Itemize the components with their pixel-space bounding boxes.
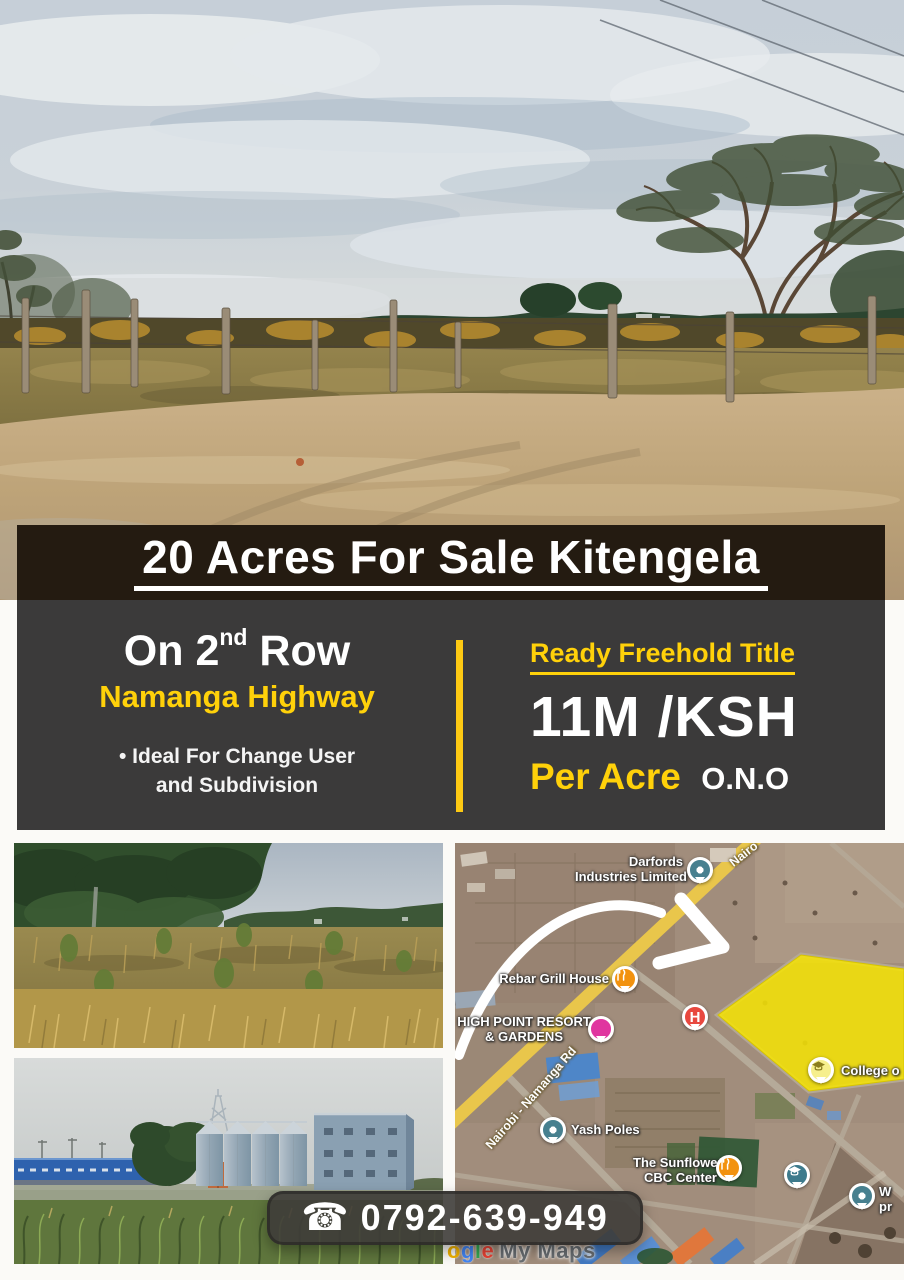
- phone-number: 0792-639-949: [361, 1197, 609, 1239]
- location-block: On 2nd Row Namanga Highway • Ideal For C…: [17, 600, 457, 801]
- hero-photo-art: [0, 0, 904, 600]
- label-highpoint: HIGH POINT RESORT & GARDENS: [457, 1015, 591, 1045]
- title-banner: 20 Acres For Sale Kitengela: [17, 525, 885, 600]
- flyer: 20 Acres For Sale Kitengela On 2nd Row N…: [0, 0, 904, 1280]
- per-acre-row: Per Acre O.N.O: [530, 758, 890, 795]
- grey-building: [314, 1114, 414, 1192]
- hero-photo: [0, 0, 904, 600]
- freehold-title: Ready Freehold Title: [530, 640, 795, 675]
- telephone-icon: ☎: [301, 1199, 348, 1237]
- poi-pin-highpoint-icon: [588, 1016, 614, 1042]
- price-block: Ready Freehold Title 11M /KSH Per Acre O…: [530, 600, 890, 795]
- label-darfords: Darfords Industries Limited: [575, 855, 683, 885]
- row-line: On 2nd Row: [17, 626, 457, 673]
- ono-label: O.N.O: [701, 761, 789, 796]
- label-sunflower: The Sunflower CBC Center: [633, 1156, 717, 1186]
- ordinal-superscript: nd: [219, 624, 247, 650]
- poi-pin-hospital-icon: H: [682, 1004, 708, 1030]
- details-panel: On 2nd Row Namanga Highway • Ideal For C…: [17, 600, 885, 830]
- field-photo: [14, 843, 443, 1048]
- label-college: College o: [841, 1064, 900, 1079]
- feature-bullet: • Ideal For Change User and Subdivision: [17, 742, 457, 801]
- page-title: 20 Acres For Sale Kitengela: [134, 534, 768, 591]
- poi-pin-college-icon: [808, 1057, 834, 1083]
- per-acre-label: Per Acre: [530, 756, 681, 797]
- poi-pin-rebar-restaurant-icon: [612, 966, 638, 992]
- poi-pin-west-icon: [849, 1183, 875, 1209]
- poi-pin-yash-icon: [540, 1117, 566, 1143]
- poi-pin-darfords-icon: [687, 857, 713, 883]
- vertical-divider: [456, 640, 463, 812]
- label-yash: Yash Poles: [571, 1123, 640, 1138]
- poi-pin-school-icon: [784, 1162, 810, 1188]
- label-west: W pr: [879, 1185, 892, 1215]
- price-value: 11M /KSH: [530, 689, 890, 746]
- phone-pill: ☎ 0792-639-949: [267, 1191, 643, 1245]
- poi-pin-sunflower-restaurant-icon: [716, 1155, 742, 1181]
- label-rebar: Rebar Grill House: [495, 972, 609, 987]
- bullet-icon: •: [119, 745, 126, 768]
- highway-name: Namanga Highway: [17, 681, 457, 712]
